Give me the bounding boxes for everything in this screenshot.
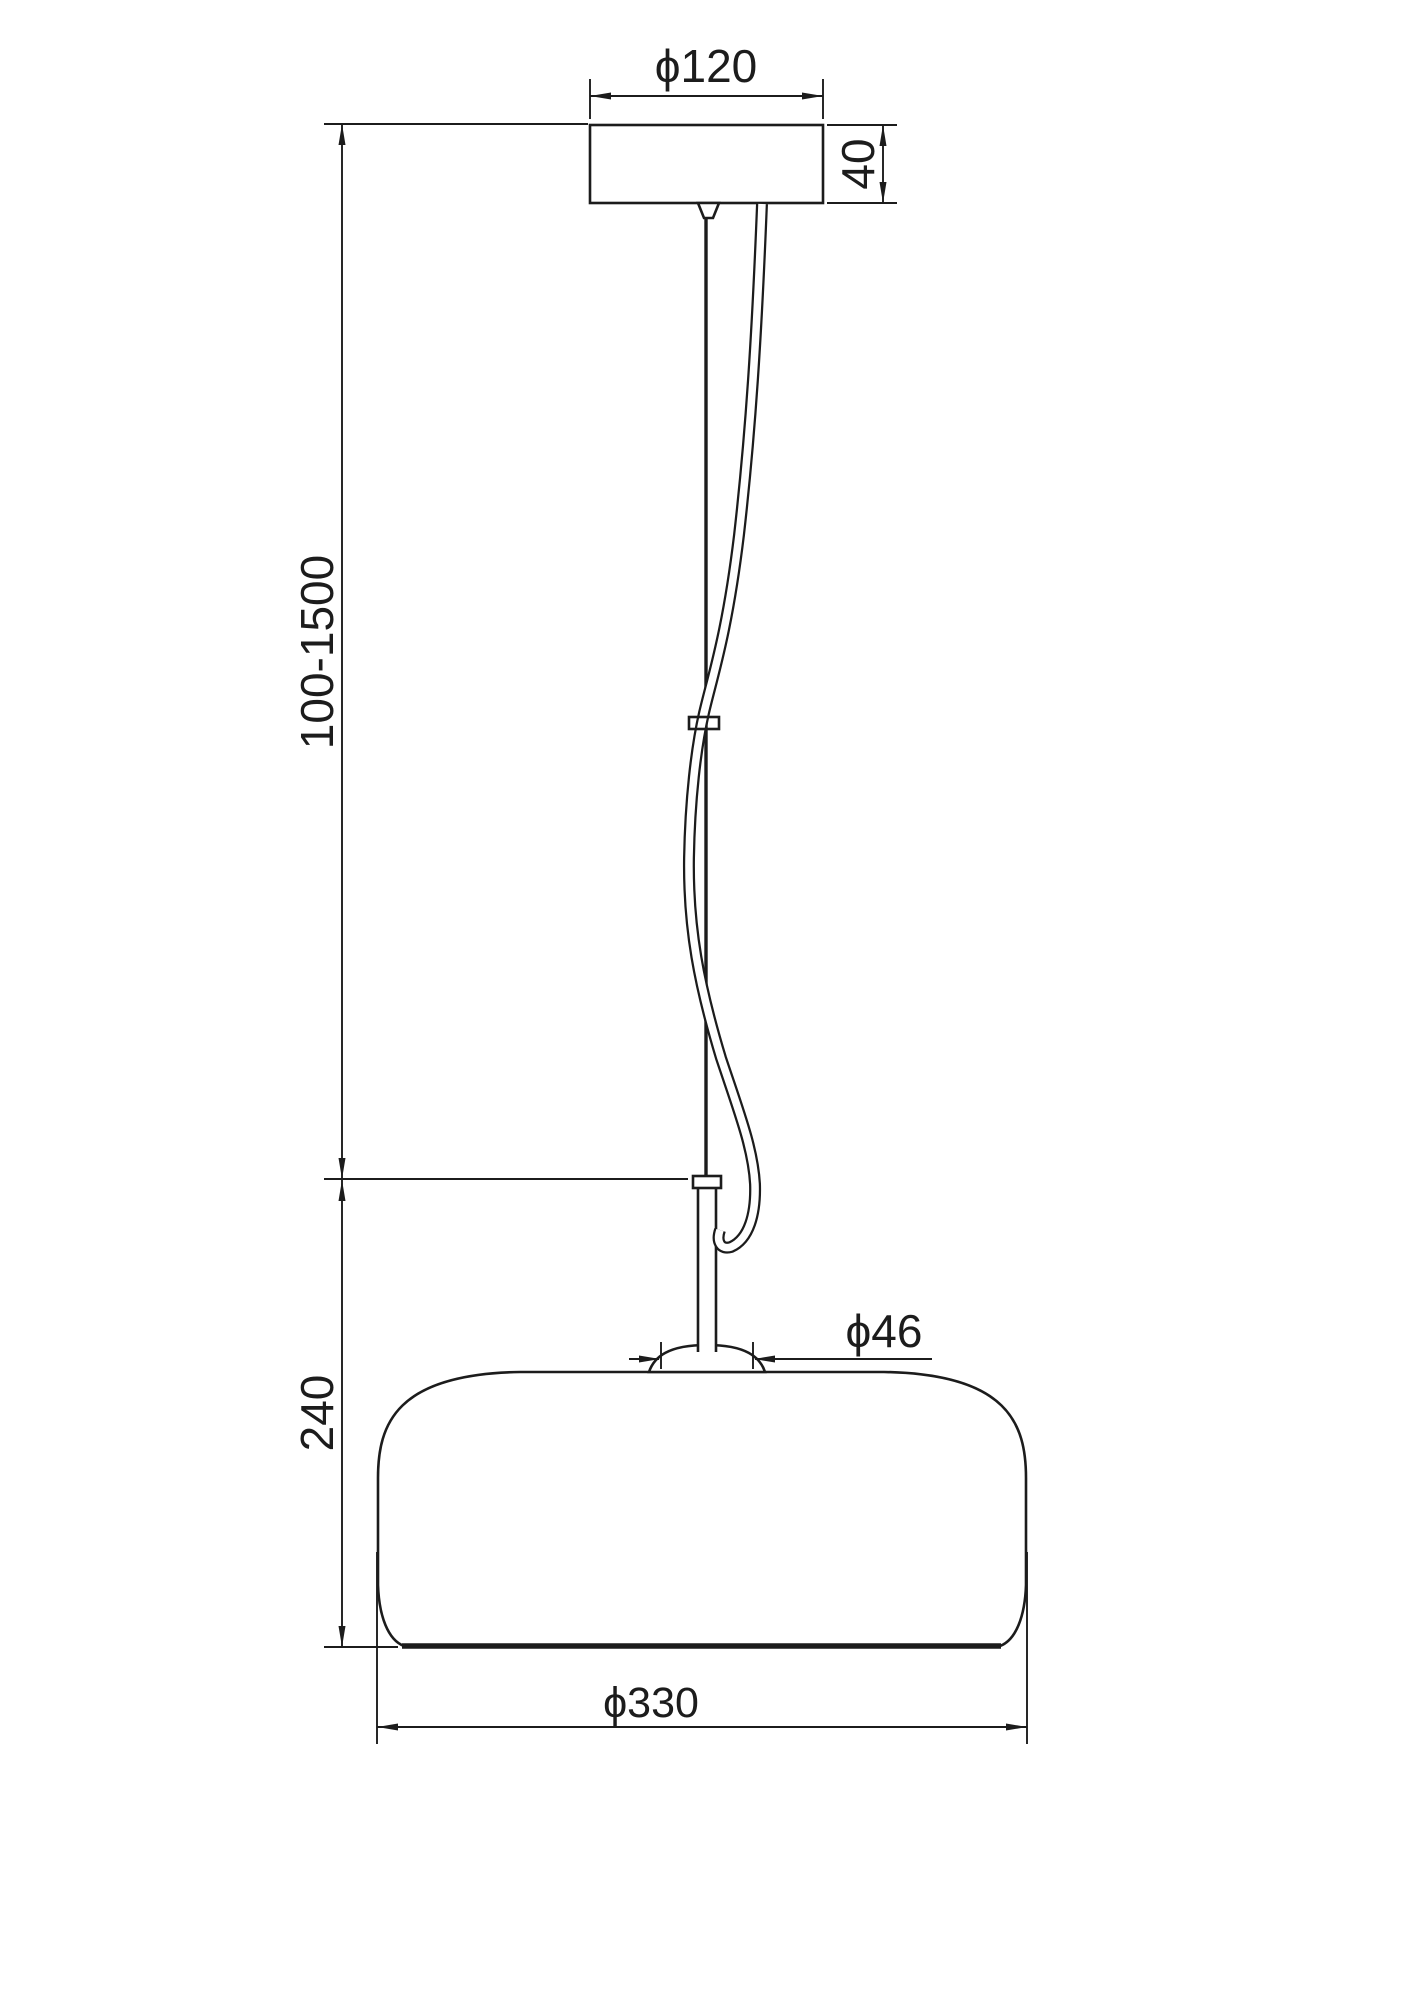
lamp-shade [378,1372,1026,1646]
pendant-lamp-drawing: 100-1500 240 ϕ120 40 ϕ46 [0,0,1413,2000]
suspension-length-label: 100-1500 [291,555,343,749]
shade-diameter-label: ϕ330 [603,1679,699,1727]
canopy-height-label: 40 [832,138,884,189]
stem-tube-fill [698,1188,716,1354]
dimension-canopy-diameter: ϕ120 [590,40,823,119]
canopy-diameter-label: ϕ120 [655,40,758,92]
power-cord-core [689,204,762,1248]
ceiling-canopy [590,125,823,203]
fixture-height-label: 240 [291,1375,343,1452]
stem-cap [693,1176,721,1188]
dimension-canopy-height: 40 [827,125,897,203]
socket-diameter-label: ϕ46 [846,1305,923,1357]
dimension-suspension-length: 100-1500 [291,124,688,1179]
wire-fitting [698,203,719,218]
drawing-page: 100-1500 240 ϕ120 40 ϕ46 [0,0,1413,2000]
